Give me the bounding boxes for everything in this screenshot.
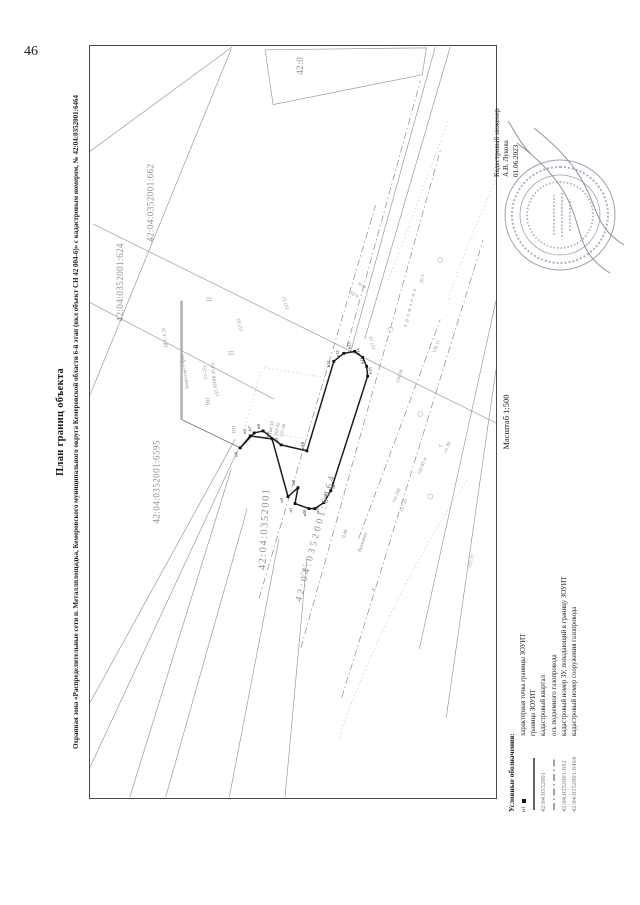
svg-text:Ст-25а: Ст-25а: [202, 364, 209, 380]
svg-text:промзона: промзона: [403, 286, 419, 328]
svg-text:н3: н3: [279, 497, 284, 502]
svg-text:н7: н7: [247, 426, 252, 431]
scanned-page: { "page_number": "46", "title": "План гр…: [0, 0, 640, 905]
svg-text:157.26: 157.26: [400, 498, 410, 513]
legend-item-point: н1 характерная точка границы ЗОУИТ: [520, 472, 527, 812]
svg-text:156.59: 156.59: [396, 369, 406, 384]
legend-item-pipeline-axis: ось подземного газопровода: [551, 472, 558, 812]
parcel-number-labels: 42:04:0352001:624 42:04:0352001:662 42:0…: [115, 57, 338, 603]
svg-text:4.10: 4.10: [357, 280, 367, 289]
svg-text:н14: н14: [356, 348, 361, 356]
parcel-662-label: 42:04:0352001:662: [146, 163, 156, 241]
legend-header: Условные обозначения:: [507, 472, 516, 812]
legend-item-boundary: граница ЗОУИТ: [530, 472, 537, 812]
svg-text:н20: н20: [302, 509, 307, 517]
legend: Условные обозначения: н1 характерная точ…: [507, 472, 581, 812]
stamp-area: [492, 108, 640, 293]
seal-icon: [505, 160, 615, 270]
svg-text:156.11: 156.11: [432, 339, 441, 354]
svg-text:0.40: 0.40: [342, 529, 350, 539]
legend-item-quarter: 42:04:0352001 кадастровый квартал: [540, 472, 547, 812]
signature-icon: [508, 121, 624, 273]
svg-text:н6: н6: [233, 451, 238, 456]
quarter-label: 42:04:0352001: [257, 487, 272, 570]
svg-text:II: II: [227, 350, 235, 355]
drawing-frame: н1 н2 н3 н4 н5 н6 н7 н8 н9 н10 н11 н12 н…: [89, 45, 497, 799]
svg-text:Г: Г: [439, 444, 444, 447]
svg-text:157.19: 157.19: [369, 335, 377, 350]
svg-text:газ 200: газ 200: [392, 487, 403, 503]
boundary-point-labels: н1 н2 н3 н4 н5 н6 н7 н8 н9 н10 н11 н12 н…: [233, 342, 372, 517]
plan-drawing: н1 н2 н3 н4 н5 н6 н7 н8 н9 н10 н11 н12 н…: [90, 46, 496, 798]
parcel-cut-label: 42:0: [295, 57, 305, 75]
dashdot-line-icon: [552, 756, 556, 812]
svg-text:н1: н1: [288, 508, 293, 513]
svg-text:II: II: [205, 296, 213, 301]
svg-text:н12: н12: [335, 350, 340, 358]
page-subtitle: Охранная зона «Распределительные сети п.…: [72, 15, 80, 829]
svg-text:ст. 89: ст. 89: [444, 441, 454, 454]
svg-text:н9: н9: [274, 437, 279, 442]
svg-text:НП: НП: [232, 425, 237, 433]
svg-text:157.77: 157.77: [467, 554, 477, 569]
svg-text:н2: н2: [291, 479, 296, 484]
svg-text:Г: Г: [373, 587, 378, 590]
parcel-624-label: 42:04:0352001:624: [115, 243, 125, 322]
svg-text:156.85 м: 156.85 м: [418, 456, 429, 475]
zone-number-label: 42:04:0352001:6464: [294, 472, 338, 602]
page-title: План границ объекта: [55, 45, 66, 799]
pipeline-axis-lines: [259, 81, 483, 698]
plan-sheet: План границ объекта Охранная зона «Распр…: [0, 0, 640, 905]
point-symbol-icon: [522, 799, 526, 803]
svg-text:н13: н13: [347, 342, 352, 350]
parcel-6595-label: 42:04:0352001:6595: [152, 440, 162, 523]
svg-text:н16: н16: [368, 367, 373, 375]
svg-text:ЦРС-6 25: ЦРС-6 25: [162, 327, 170, 348]
parcel-lines: [90, 47, 496, 797]
legend-item-parcel-number: 42:04:0352001:692 кадастровый номер ЗУ, …: [561, 472, 568, 812]
svg-text:Времянка: Времянка: [358, 531, 369, 553]
svg-text:ПМ 43.92: ПМ 43.92: [210, 362, 218, 383]
svg-text:157.63: 157.63: [237, 317, 245, 332]
legend-item-structure-number: 42:04:0352001:6464 кадастровый номер соо…: [571, 472, 578, 812]
svg-text:н10: н10: [300, 441, 305, 449]
svg-text:н11: н11: [326, 360, 331, 367]
svg-text:н8: н8: [256, 424, 261, 429]
svg-text:6.05: 6.05: [349, 289, 359, 298]
svg-text:20 3: 20 3: [419, 274, 426, 284]
zouit-boundary: [240, 351, 367, 508]
svg-text:н15: н15: [360, 357, 365, 365]
utility-labels: ЦРС-6 25 Закрытая ст-ф25 Ст-25а ПМ 43.92…: [162, 274, 453, 590]
svg-text:НП: НП: [206, 397, 211, 405]
svg-text:157.57: 157.57: [282, 295, 290, 310]
solid-line-icon: [532, 756, 536, 812]
